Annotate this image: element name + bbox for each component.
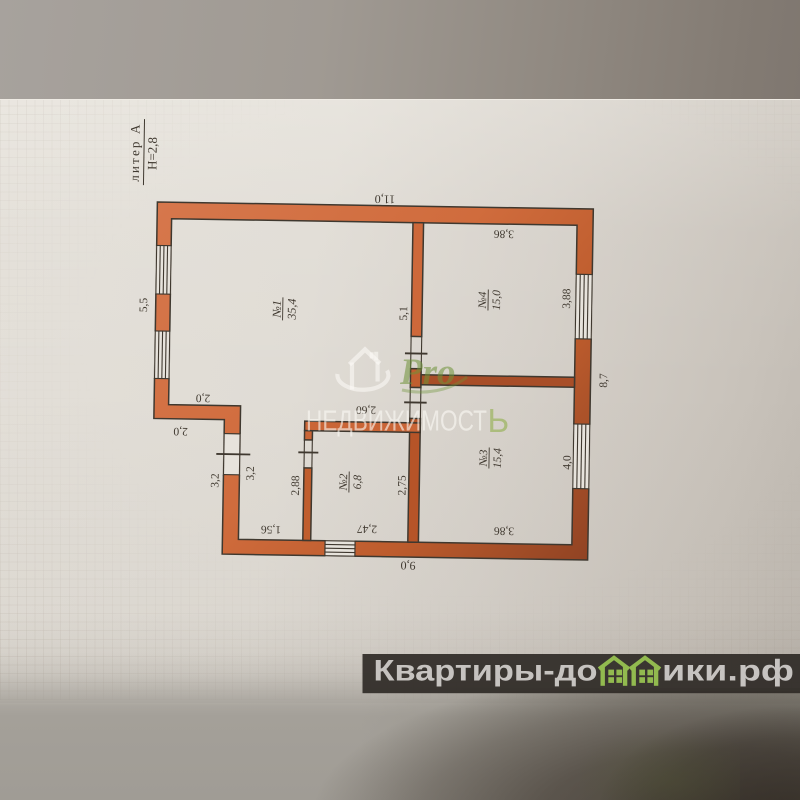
svg-text:ики.рф: ики.рф (662, 655, 794, 688)
svg-text:Квартиры-до: Квартиры-до (374, 655, 598, 688)
